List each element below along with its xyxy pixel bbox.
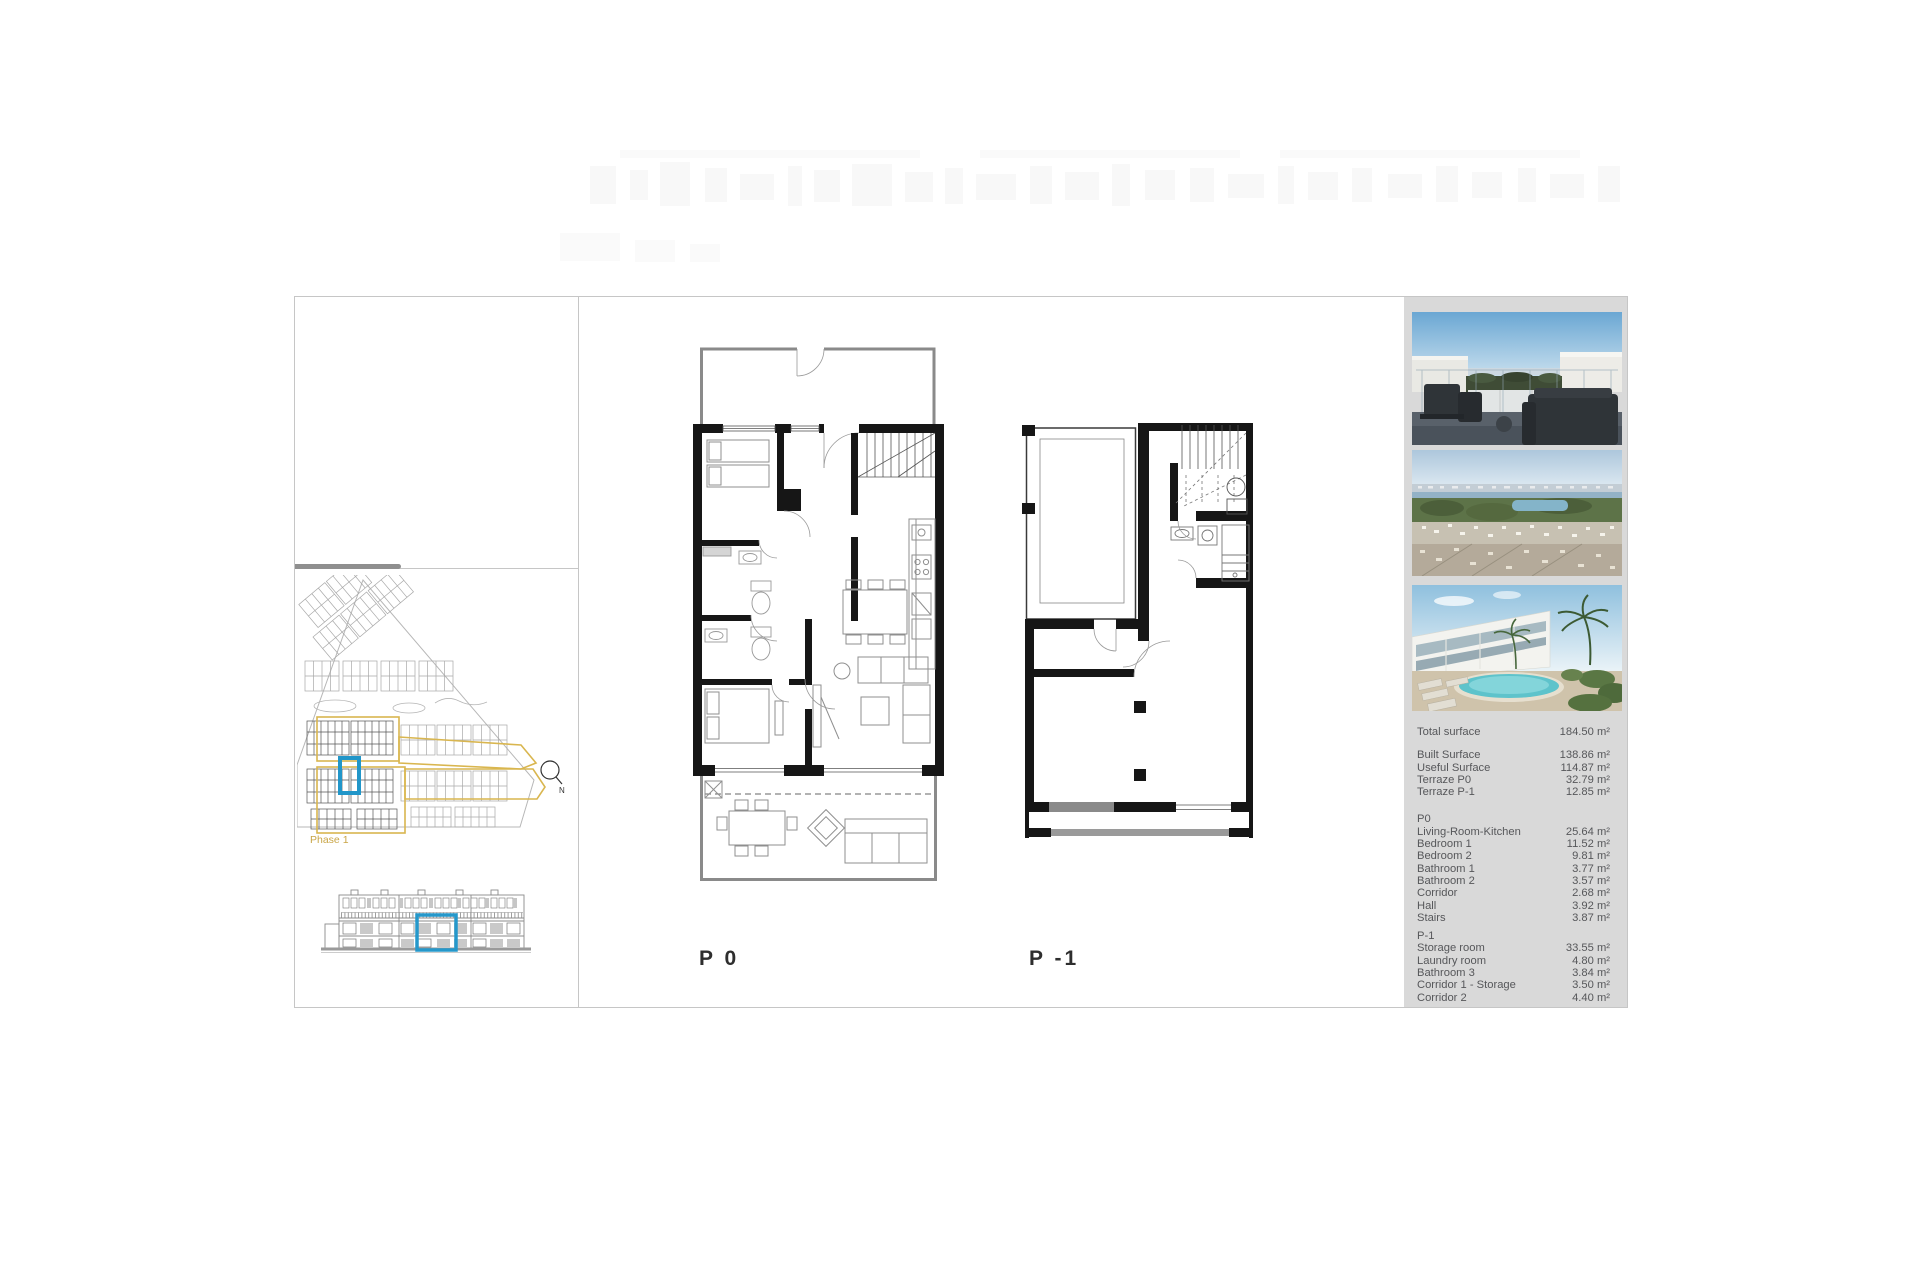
photo-aerial-view (1412, 450, 1622, 576)
wall-gray-segment (1049, 802, 1114, 812)
section-title: P-1 (1417, 930, 1434, 942)
watermark-band (560, 148, 1660, 278)
room-value: 3.77 m² (1572, 863, 1610, 875)
bathroom1 (703, 547, 771, 614)
room-row: Bedroom 2 9.81 m² (1417, 850, 1610, 862)
surface-value: 138.86 m² (1560, 749, 1610, 761)
compass-label: N (559, 786, 565, 795)
terrace-furniture (705, 781, 927, 863)
room-row: Bathroom 3 3.84 m² (1417, 967, 1610, 979)
stairs (1182, 425, 1238, 469)
room-row: Bathroom 1 3.77 m² (1417, 863, 1610, 875)
room-label: Bedroom 1 (1417, 838, 1472, 850)
p0-plan-label: P 0 (699, 947, 739, 971)
room-label: Bedroom 2 (1417, 850, 1472, 862)
room-label: Corridor 2 (1417, 992, 1467, 1004)
bedroom1-beds (707, 440, 769, 487)
unit-row-c-light (401, 771, 507, 801)
floor-plan-p-minus-1 (1020, 423, 1253, 848)
room-label: Bathroom 1 (1417, 863, 1475, 875)
surface-row: Terraze P0 32.79 m² (1417, 774, 1610, 786)
room-value: 11.52 m² (1567, 838, 1610, 850)
windows (715, 426, 922, 772)
compass-icon: N (541, 761, 565, 795)
room-value: 3.87 m² (1572, 912, 1610, 924)
room-label: Stairs (1417, 912, 1446, 924)
room-label: Hall (1417, 900, 1436, 912)
room-value: 3.92 m² (1572, 900, 1610, 912)
room-row: Corridor 1 - Storage 3.50 m² (1417, 979, 1610, 991)
unit-row-d-dark (311, 809, 397, 829)
building-elevation (313, 882, 541, 974)
unit-row-c-dark (307, 769, 393, 803)
room-row: Stairs 3.87 m² (1417, 912, 1610, 924)
plan-sheet: N Phase 1 (294, 296, 1628, 1008)
left-top-cell (295, 297, 579, 569)
room-row: Bathroom 2 3.57 m² (1417, 875, 1610, 887)
terrace-bottom-walls (702, 776, 936, 880)
floor-plan-p0 (693, 341, 944, 889)
unit-row-a (305, 661, 453, 691)
phase-label: Phase 1 (310, 834, 349, 846)
highlighted-unit (340, 758, 359, 793)
unit-row-b-dark (307, 721, 393, 755)
section-header: P-1 (1417, 930, 1610, 942)
left-bottom-cell: N Phase 1 (295, 569, 579, 1007)
total-surface-label: Total surface (1417, 726, 1480, 738)
garden-ponds (314, 698, 487, 713)
p-minus-1-plan-label: P -1 (1029, 947, 1079, 971)
p-minus-1-room-list: P-1 Storage room 33.55 m² Laundry room 4… (1417, 930, 1610, 1004)
walls (1022, 423, 1253, 838)
room-value: 3.84 m² (1572, 967, 1610, 979)
room-value: 4.40 m² (1572, 992, 1610, 1004)
living-room (813, 657, 930, 747)
surface-value: 114.87 m² (1560, 762, 1610, 774)
room-label: Corridor 1 - Storage (1417, 979, 1516, 991)
room-value: 9.81 m² (1572, 850, 1610, 862)
photo-terrace-render (1412, 312, 1622, 445)
stairs (858, 433, 935, 477)
room-row: Corridor 2 4.40 m² (1417, 992, 1610, 1004)
surface-label: Terraze P-1 (1417, 786, 1475, 798)
surface-summary: Total surface 184.50 m² Built Surface 13… (1417, 726, 1610, 1004)
surface-row: Useful Surface 114.87 m² (1417, 762, 1610, 774)
bedroom2-bed (705, 689, 783, 743)
surface-value: 12.85 m² (1566, 786, 1610, 798)
room-value: 3.50 m² (1572, 979, 1610, 991)
room-label: Living-Room-Kitchen (1417, 826, 1521, 838)
total-surface-value: 184.50 m² (1560, 726, 1610, 738)
unit-cluster-top (297, 575, 413, 660)
room-value: 4.80 m² (1572, 955, 1610, 967)
info-panel: Total surface 184.50 m² Built Surface 13… (1404, 297, 1627, 1007)
terrace-door (797, 349, 824, 376)
room-value: 2.68 m² (1572, 887, 1610, 899)
terrace-gray-segment (1051, 829, 1229, 836)
kitchen (909, 519, 935, 669)
surface-row: Built Surface 138.86 m² (1417, 749, 1610, 761)
surface-value: 32.79 m² (1566, 774, 1610, 786)
room-row: Corridor 2.68 m² (1417, 887, 1610, 899)
room-value: 25.64 m² (1566, 826, 1610, 838)
photo-pool-render (1412, 585, 1622, 711)
roof-chimneys (351, 890, 498, 895)
interior-walls (702, 433, 858, 765)
room-row: Living-Room-Kitchen 25.64 m² (1417, 826, 1610, 838)
terrace-top-walls (702, 349, 935, 424)
room-value: 3.57 m² (1572, 875, 1610, 887)
bathroom2 (705, 627, 771, 660)
room-label: Storage room (1417, 942, 1485, 954)
patio-inner (1040, 439, 1124, 603)
section-header: P0 (1417, 813, 1610, 825)
total-surface-row: Total surface 184.50 m² (1417, 726, 1610, 738)
brochure-page: N Phase 1 (0, 0, 1920, 1280)
surface-label: Terraze P0 (1417, 774, 1471, 786)
room-row: Laundry room 4.80 m² (1417, 955, 1610, 967)
surface-label: Useful Surface (1417, 762, 1490, 774)
room-label: Bathroom 3 (1417, 967, 1475, 979)
unit-row-d-light (411, 807, 495, 827)
p0-room-list: P0 Living-Room-Kitchen 25.64 m² Bedroom … (1417, 813, 1610, 924)
room-value: 33.55 m² (1566, 942, 1610, 954)
room-row: Storage room 33.55 m² (1417, 942, 1610, 954)
room-row: Bedroom 1 11.52 m² (1417, 838, 1610, 850)
section-title: P0 (1417, 813, 1431, 825)
surface-group: Built Surface 138.86 m² Useful Surface 1… (1417, 749, 1610, 798)
patio-outline (1027, 428, 1136, 619)
site-plan: N Phase 1 (297, 575, 577, 853)
surface-row: Terraze P-1 12.85 m² (1417, 786, 1610, 798)
room-label: Corridor (1417, 887, 1457, 899)
room-row: Hall 3.92 m² (1417, 900, 1610, 912)
storage-window (1176, 805, 1231, 810)
room-label: Laundry room (1417, 955, 1486, 967)
room-label: Bathroom 2 (1417, 875, 1475, 887)
surface-label: Built Surface (1417, 749, 1480, 761)
